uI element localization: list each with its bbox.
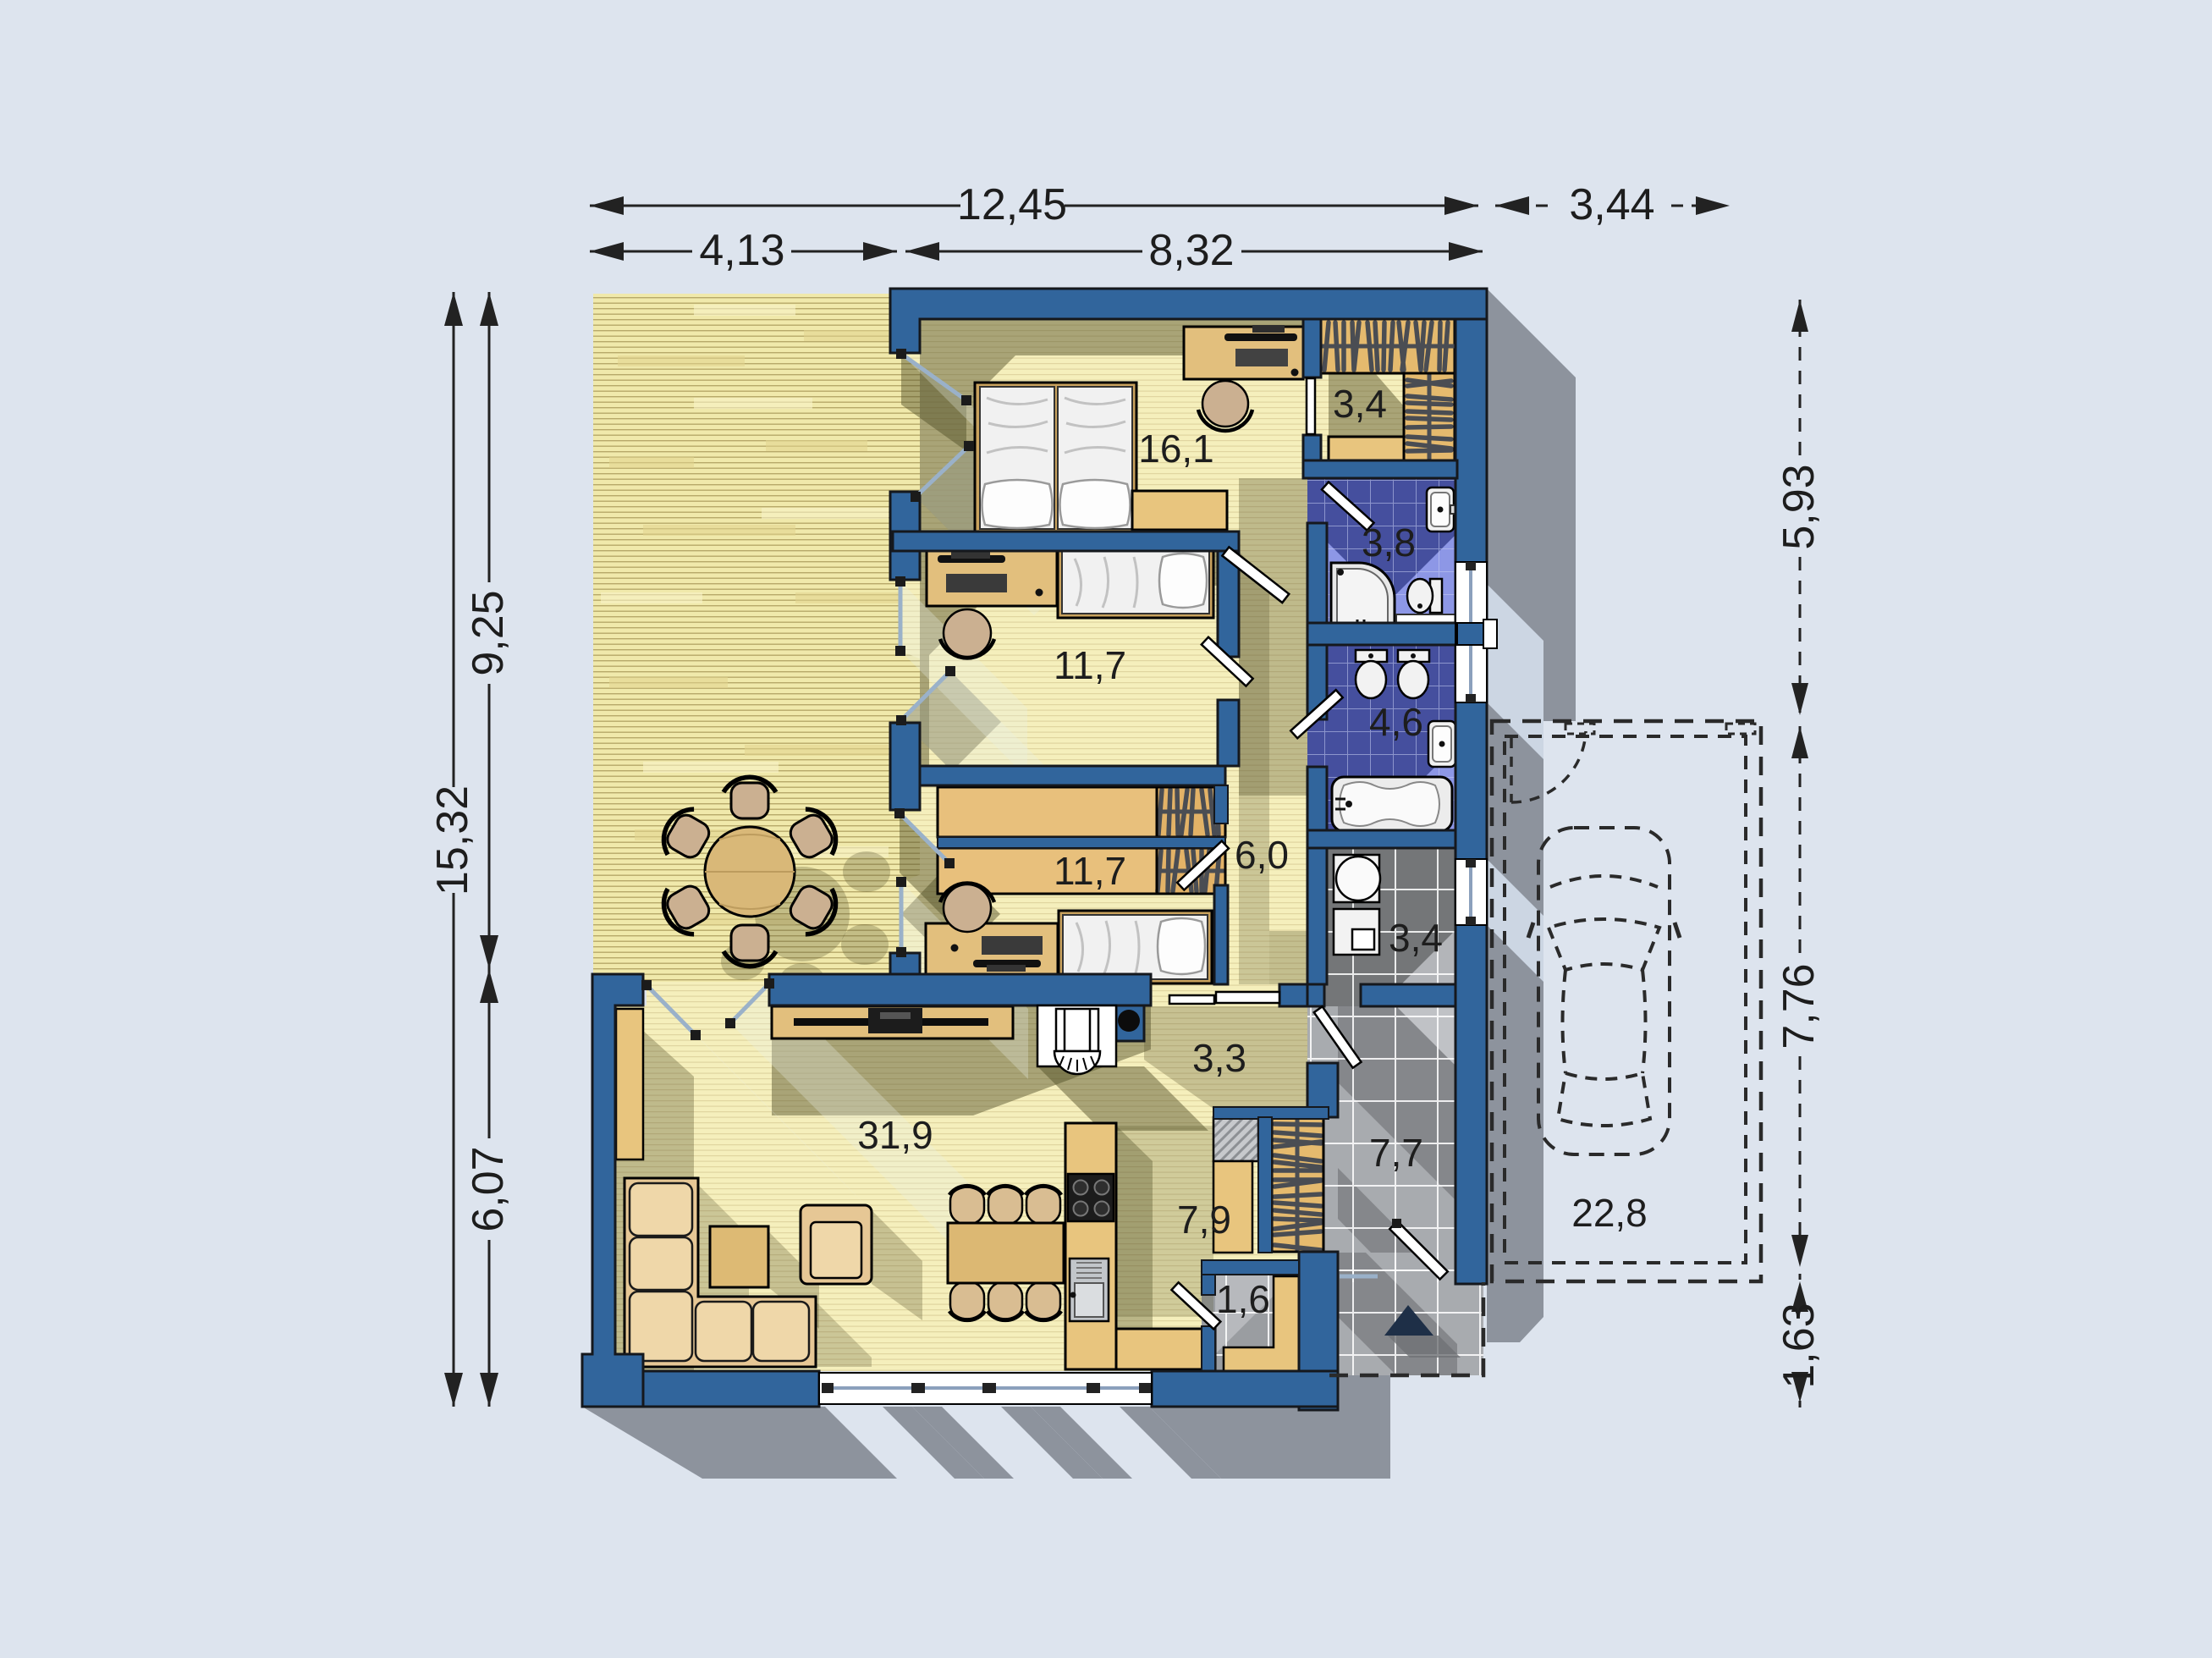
svg-text:15,32: 15,32 xyxy=(428,785,477,895)
svg-text:16,1: 16,1 xyxy=(1138,427,1214,471)
svg-text:3,4: 3,4 xyxy=(1389,916,1443,960)
svg-text:11,7: 11,7 xyxy=(1054,643,1126,687)
svg-text:9,25: 9,25 xyxy=(464,590,513,675)
svg-text:31,9: 31,9 xyxy=(857,1113,933,1157)
svg-text:3,4: 3,4 xyxy=(1333,382,1387,426)
svg-text:22,8: 22,8 xyxy=(1571,1191,1648,1235)
svg-text:3,8: 3,8 xyxy=(1362,521,1416,565)
svg-text:7,7: 7,7 xyxy=(1369,1131,1423,1175)
svg-text:1,63: 1,63 xyxy=(1775,1303,1824,1388)
svg-text:6,0: 6,0 xyxy=(1235,833,1289,877)
svg-text:1,6: 1,6 xyxy=(1216,1277,1270,1321)
svg-text:6,07: 6,07 xyxy=(464,1146,513,1231)
svg-text:7,76: 7,76 xyxy=(1775,963,1824,1049)
svg-text:4,6: 4,6 xyxy=(1369,700,1423,744)
svg-text:5,93: 5,93 xyxy=(1775,464,1824,549)
svg-text:12,45: 12,45 xyxy=(957,180,1067,229)
svg-text:3,3: 3,3 xyxy=(1192,1036,1246,1080)
svg-text:3,44: 3,44 xyxy=(1569,180,1654,229)
svg-text:7,9: 7,9 xyxy=(1177,1198,1231,1242)
svg-text:8,32: 8,32 xyxy=(1148,226,1234,275)
svg-text:11,7: 11,7 xyxy=(1054,849,1126,893)
svg-text:4,13: 4,13 xyxy=(699,226,784,275)
